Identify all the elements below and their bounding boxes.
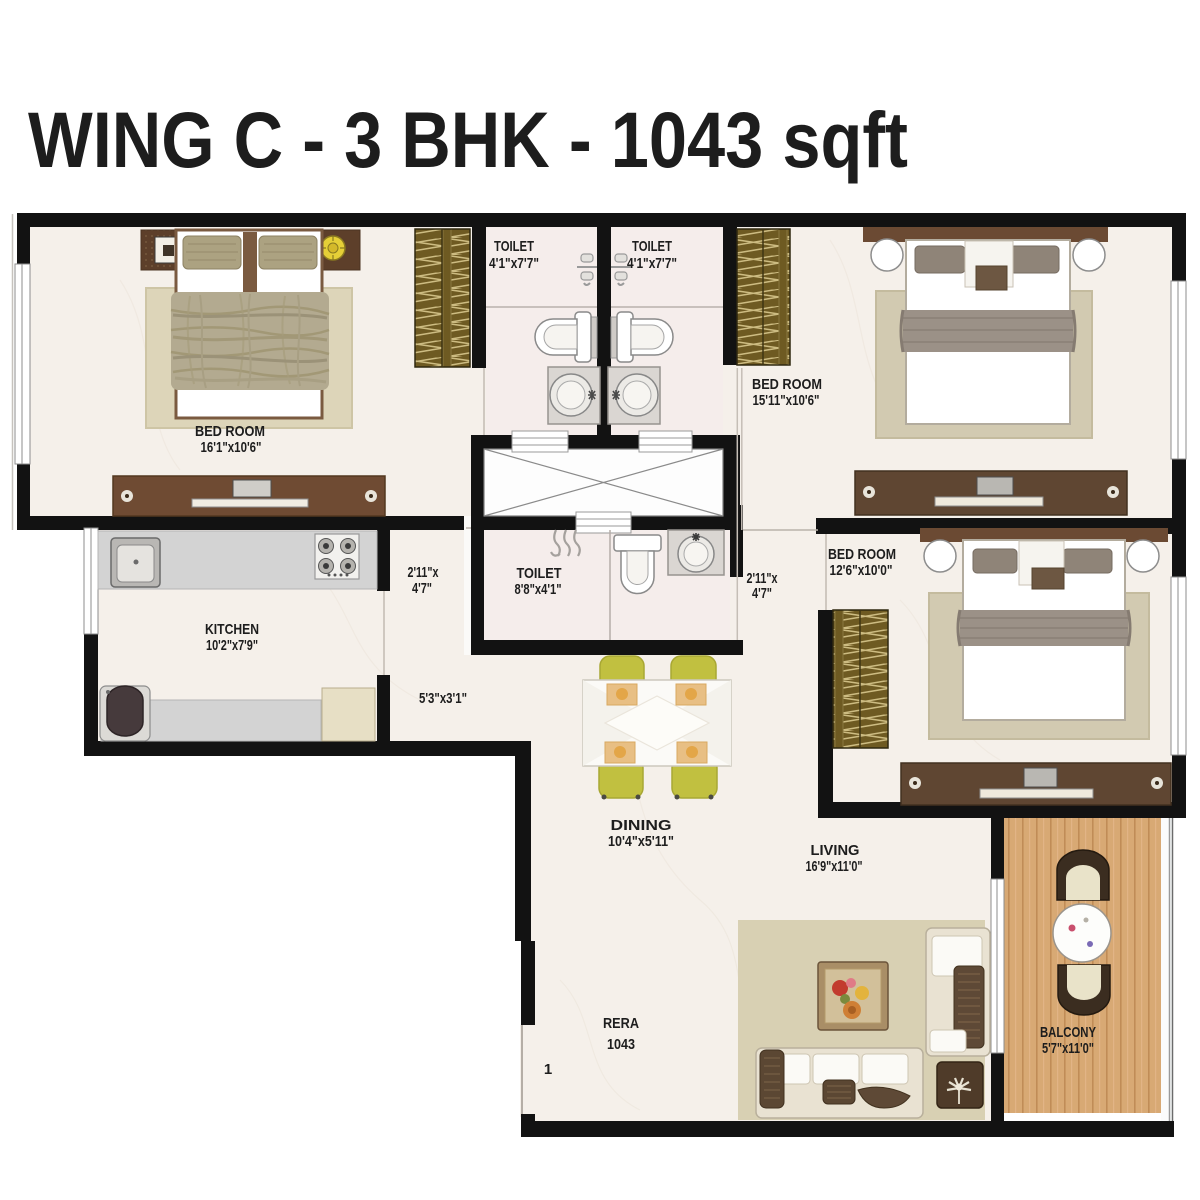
svg-text:TOILET: TOILET [494,238,534,255]
svg-text:BALCONY: BALCONY [1040,1024,1096,1041]
svg-text:2'11"x: 2'11"x [408,564,439,581]
svg-text:TOILET: TOILET [632,238,672,255]
svg-text:LIVING: LIVING [811,842,860,859]
svg-text:10'2"x7'9": 10'2"x7'9" [206,637,258,654]
svg-text:4'7": 4'7" [752,585,772,602]
svg-text:1: 1 [544,1061,552,1078]
svg-text:8'8"x4'1": 8'8"x4'1" [515,581,562,598]
svg-text:RERA: RERA [603,1015,639,1032]
svg-text:16'9"x11'0": 16'9"x11'0" [806,858,863,875]
svg-text:BED ROOM: BED ROOM [195,423,265,440]
svg-text:10'4"x5'11": 10'4"x5'11" [608,833,674,850]
svg-text:15'11"x10'6": 15'11"x10'6" [753,392,820,409]
svg-text:5'3"x3'1": 5'3"x3'1" [419,690,467,707]
svg-text:4'1"x7'7": 4'1"x7'7" [489,255,539,272]
svg-text:16'1"x10'6": 16'1"x10'6" [201,439,262,456]
svg-text:KITCHEN: KITCHEN [205,621,259,638]
svg-text:DINING: DINING [611,817,672,834]
svg-text:5'7"x11'0": 5'7"x11'0" [1042,1040,1094,1057]
svg-text:4'1"x7'7": 4'1"x7'7" [627,255,677,272]
svg-text:TOILET: TOILET [517,565,562,582]
svg-text:4'7": 4'7" [412,580,432,597]
svg-text:BED ROOM: BED ROOM [752,376,822,393]
svg-text:WING C - 3 BHK - 1043 sqft: WING C - 3 BHK - 1043 sqft [28,95,908,184]
svg-text:BED ROOM: BED ROOM [828,546,896,563]
svg-text:12'6"x10'0": 12'6"x10'0" [830,562,893,579]
svg-text:1043: 1043 [607,1036,635,1053]
